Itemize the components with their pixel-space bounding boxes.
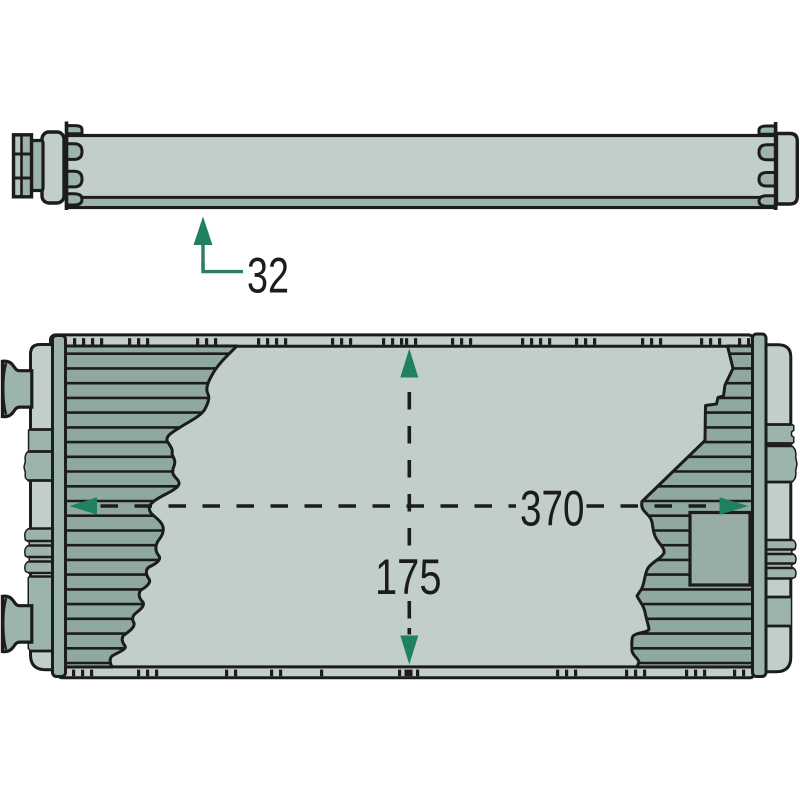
svg-text:32: 32 xyxy=(247,248,289,304)
svg-text:175: 175 xyxy=(375,549,442,605)
svg-text:370: 370 xyxy=(520,480,585,536)
